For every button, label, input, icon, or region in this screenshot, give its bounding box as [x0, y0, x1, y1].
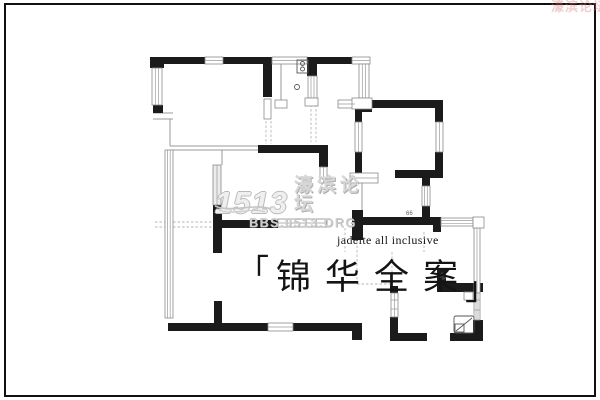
caption-subtitle: jadeite all inclusive	[337, 233, 497, 248]
brand-caption: jadeite all inclusive 「 锦 华 全 案 」	[237, 233, 497, 300]
close-bracket: 」	[465, 263, 497, 309]
corner-watermark: 濠滨论坛	[551, 0, 600, 15]
title-char: 锦	[276, 249, 311, 300]
caption-title: 「 锦 华 全 案 」	[237, 249, 497, 300]
toilet-icon	[454, 316, 474, 333]
title-char: 华	[325, 249, 360, 300]
title-char: 案	[423, 249, 458, 300]
title-char: 全	[374, 249, 409, 300]
room-dimension-label: 66	[406, 211, 413, 217]
sink-circle-icon	[295, 85, 300, 90]
watermark-site-name: 濠滨论坛	[294, 176, 385, 218]
watermark-wave-icon	[213, 203, 273, 215]
open-bracket: 「	[237, 246, 269, 292]
forum-watermark: 1513 濠滨论坛 BBS.0513.ORG	[215, 176, 385, 230]
floor-plan-page: 66 濠滨论坛 1513 濠滨论坛 BBS.0513.ORG jadeite a…	[0, 0, 600, 400]
